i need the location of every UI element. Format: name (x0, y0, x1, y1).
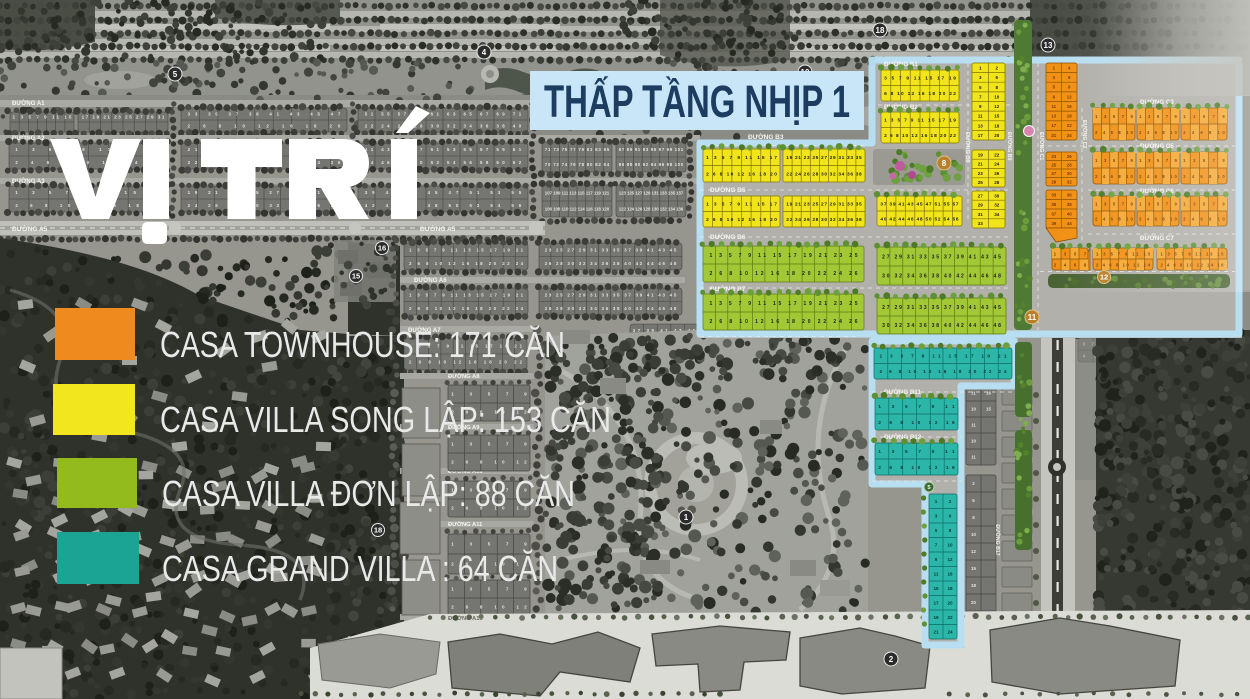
svg-text:87 89 91 93 95 97 99 101: 87 89 91 93 95 97 99 101 (619, 147, 684, 152)
svg-text:ĐƯỜNG B5: ĐƯỜNG B5 (710, 185, 746, 194)
svg-text:19 21 23 25 27 29 31 33 35: 19 21 23 25 27 29 31 33 35 (786, 202, 862, 208)
svg-text:26: 26 (994, 171, 1000, 176)
svg-text:ĐƯỜNG B9: ĐƯỜNG B9 (1006, 132, 1014, 160)
svg-text:ĐƯỜNG B9: ĐƯỜNG B9 (964, 132, 972, 163)
svg-text:ĐƯỜNG A1: ĐƯỜNG A1 (12, 99, 45, 107)
svg-text:ĐƯỜNG A8: ĐƯỜNG A8 (448, 372, 480, 380)
svg-text:11: 11 (971, 391, 976, 396)
svg-text:18: 18 (994, 123, 1000, 128)
svg-text:71 73 75 77 79 81 83 85: 71 73 75 77 79 81 83 85 (545, 147, 610, 152)
svg-text:2 6 8 10 12 16 18 20: 2 6 8 10 12 16 18 20 (706, 217, 777, 223)
svg-text:2: 2 (889, 655, 894, 664)
svg-text:123 125 127 129 131 133 135 13: 123 125 127 129 131 133 135 137 (619, 191, 684, 196)
svg-text:22 24 26 28 30 32 34 36 38 40: 22 24 26 28 30 32 34 36 38 40 (365, 124, 522, 129)
svg-text:37 39 41 43 45 47 51 55 57: 37 39 41 43 45 47 51 55 57 (880, 201, 959, 207)
svg-text:15: 15 (994, 114, 1000, 119)
svg-text:40 42 44 46 48 50 52 54 56: 40 42 44 46 48 50 52 54 56 (880, 216, 959, 222)
svg-text:25: 25 (978, 180, 984, 185)
svg-text:24: 24 (994, 162, 1000, 167)
svg-text:31: 31 (978, 212, 984, 217)
svg-text:11: 11 (971, 423, 976, 428)
svg-text:27: 27 (978, 193, 984, 198)
svg-text:27 29 31 33 35 37 39 41 43 45: 27 29 31 33 35 37 39 41 43 45 (882, 305, 1001, 311)
svg-text:ĐƯỜNG B6: ĐƯỜNG B6 (710, 232, 746, 241)
svg-text:19: 19 (978, 152, 984, 157)
svg-text:17 19 21 23 25 27 29 31: 17 19 21 23 25 27 29 31 (82, 115, 165, 120)
svg-text:22 24 26 28 30 32 34 36 38: 22 24 26 28 30 32 34 36 38 (786, 217, 862, 223)
svg-text:30 32 34 36 38 40 42 44 46 48: 30 32 34 36 38 40 42 44 46 48 (882, 323, 1001, 329)
svg-text:ĐƯỜNG A6: ĐƯỜNG A6 (414, 276, 447, 284)
svg-text:19 21 23 25 27 29 31 33 35: 19 21 23 25 27 29 31 33 35 (786, 155, 862, 161)
svg-text:16: 16 (986, 391, 991, 396)
svg-text:15: 15 (986, 407, 991, 412)
svg-text:21: 21 (978, 162, 984, 167)
svg-text:12: 12 (994, 104, 1000, 109)
svg-text:106 108 110 112 114 116 118 12: 106 108 110 112 114 116 118 120 (545, 207, 610, 212)
svg-text:41 43 45 47 51 53 55 57 59 61: 41 43 45 47 51 53 55 57 59 61 (365, 147, 522, 152)
svg-text:8: 8 (942, 159, 947, 168)
svg-text:2 6 8 10 12 16 18 20 22 24: 2 6 8 10 12 16 18 20 22 24 (409, 261, 524, 266)
svg-text:11: 11 (971, 455, 976, 460)
svg-text:20: 20 (971, 600, 976, 605)
svg-text:11: 11 (978, 114, 983, 119)
svg-text:22: 22 (994, 152, 1000, 157)
svg-text:32: 32 (994, 203, 1000, 208)
svg-text:12: 12 (971, 549, 976, 554)
svg-text:20: 20 (994, 133, 1000, 138)
svg-text:122 124 126 128 130 132 134 13: 122 124 126 128 130 132 134 136 (619, 207, 684, 212)
svg-text:11: 11 (1028, 313, 1037, 322)
svg-text:23: 23 (978, 171, 984, 176)
svg-text:2 6 8 10 12 16 18 20 22: 2 6 8 10 12 16 18 20 22 (884, 133, 956, 139)
svg-text:ĐƯỜNG B3: ĐƯỜNG B3 (748, 132, 784, 141)
svg-text:13: 13 (978, 123, 984, 128)
svg-text:6 8 10 12 16 18 20 22: 6 8 10 12 16 18 20 22 (884, 91, 956, 97)
svg-text:ĐƯỜNG B17: ĐƯỜNG B17 (994, 524, 1002, 555)
svg-text:86 88 90 92 94 96 98 100: 86 88 90 92 94 96 98 100 (619, 162, 684, 167)
svg-text:44 46 48 50 52 54 56 58 60 62: 44 46 48 50 52 54 56 58 60 62 (365, 160, 522, 165)
svg-text:30 32 34 36 38 40 42 44 46 48: 30 32 34 36 38 40 42 44 46 48 (882, 273, 1001, 279)
svg-text:3 5 7 9 11 15 17 19: 3 5 7 9 11 15 17 19 (884, 76, 956, 82)
svg-text:30: 30 (994, 193, 1000, 198)
svg-text:10: 10 (994, 94, 1000, 99)
svg-text:2 6 8 10 12 16 18 20: 2 6 8 10 12 16 18 20 (706, 172, 777, 178)
svg-text:ĐƯỜNG C1: ĐƯỜNG C1 (1038, 132, 1046, 160)
svg-text:ĐƯỜNG A11: ĐƯỜNG A11 (448, 520, 483, 528)
svg-text:17: 17 (978, 133, 984, 138)
svg-text:18: 18 (971, 583, 976, 588)
svg-text:70 72 74 76 78 80 82 84: 70 72 74 76 78 80 82 84 (545, 162, 610, 167)
svg-text:1: 1 (684, 513, 689, 522)
svg-text:10: 10 (971, 407, 976, 412)
svg-text:51 55 57 59 61 63 65 67 69 71: 51 55 57 59 61 63 65 67 69 71 (365, 112, 522, 117)
svg-text:10: 10 (971, 439, 976, 444)
svg-text:28: 28 (994, 180, 1000, 185)
svg-text:15: 15 (971, 566, 976, 571)
svg-text:22 24 26 28 30 32 34 36 38: 22 24 26 28 30 32 34 36 38 (786, 172, 862, 178)
svg-text:27 29 31 33 35 37 39 41 43 45: 27 29 31 33 35 37 39 41 43 45 (882, 254, 1001, 260)
svg-text:33: 33 (978, 221, 984, 226)
svg-text:2 6 8 10 12 16 18 20 22 24: 2 6 8 10 12 16 18 20 22 24 (409, 306, 524, 311)
svg-text:29: 29 (978, 203, 984, 208)
svg-text:10: 10 (971, 532, 976, 537)
svg-text:34: 34 (994, 212, 1000, 217)
svg-text:107 109 111 113 115 117 119 12: 107 109 111 113 115 117 119 121 (545, 191, 610, 196)
